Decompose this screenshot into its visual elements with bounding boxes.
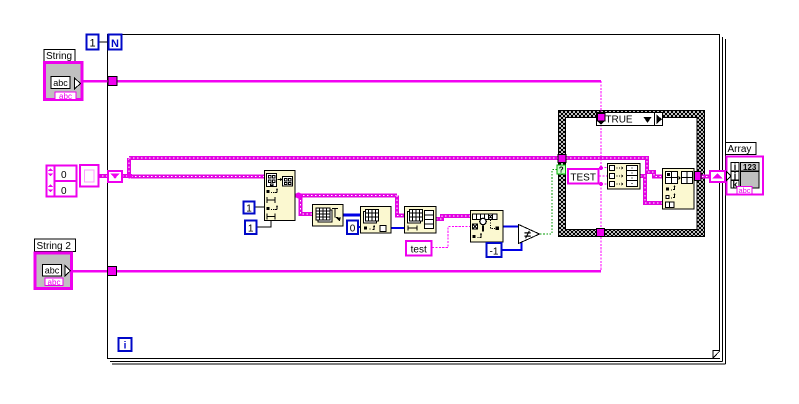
svg-text:String 2: String 2 xyxy=(37,241,72,252)
svg-text:TRUE: TRUE xyxy=(605,115,633,126)
svg-text:Array: Array xyxy=(728,144,752,155)
svg-text:1: 1 xyxy=(89,38,95,50)
svg-text:?: ? xyxy=(559,166,564,175)
svg-text:abc: abc xyxy=(738,186,750,195)
svg-text:≠: ≠ xyxy=(524,228,531,242)
svg-text:1: 1 xyxy=(246,204,252,215)
svg-text:0: 0 xyxy=(350,224,356,235)
svg-text:TEST: TEST xyxy=(570,173,596,184)
svg-text:i: i xyxy=(124,341,127,352)
svg-text:test: test xyxy=(411,245,427,256)
svg-text:1: 1 xyxy=(248,224,254,235)
svg-text:0: 0 xyxy=(61,170,67,181)
svg-text:abc: abc xyxy=(48,278,61,287)
svg-text:abc: abc xyxy=(59,92,72,101)
svg-text:String: String xyxy=(46,51,72,62)
svg-text:-1: -1 xyxy=(490,247,499,258)
svg-text:abc: abc xyxy=(45,266,60,276)
svg-text:123: 123 xyxy=(743,163,757,172)
svg-text:N: N xyxy=(111,38,119,50)
svg-text:abc: abc xyxy=(53,78,68,88)
svg-text:0: 0 xyxy=(61,186,67,197)
